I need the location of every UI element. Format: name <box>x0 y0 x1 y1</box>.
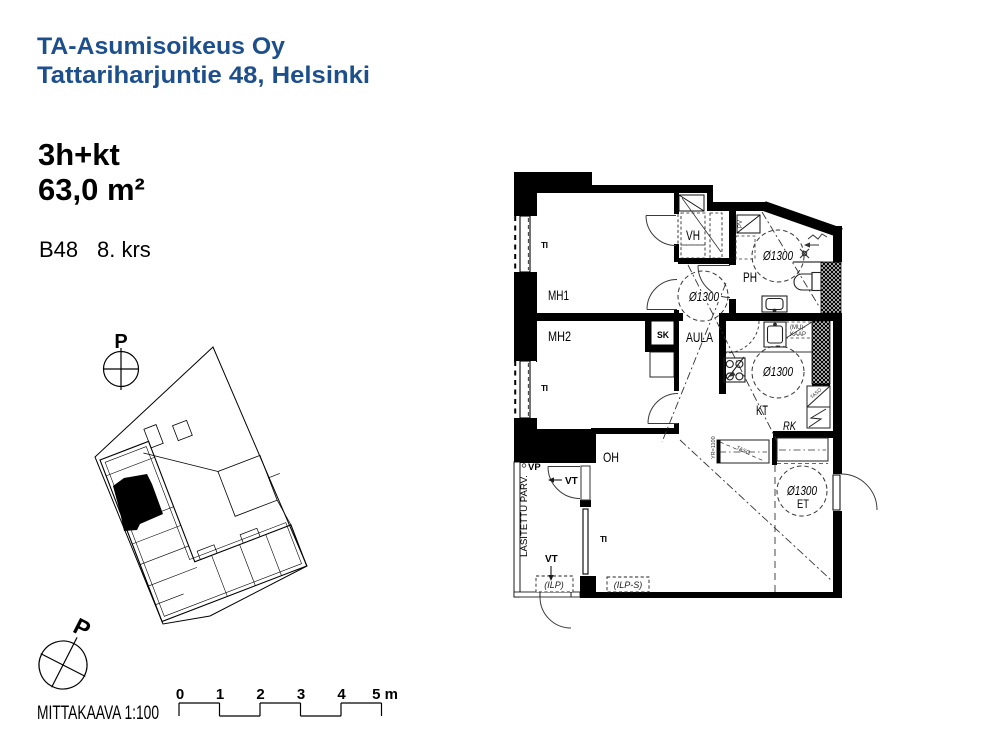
svg-text:VT: VT <box>565 476 578 487</box>
svg-text:KAAP: KAAP <box>790 332 806 338</box>
svg-text:AULA: AULA <box>686 329 713 345</box>
svg-text:Ø1300: Ø1300 <box>688 290 719 304</box>
svg-text:VH: VH <box>686 227 700 243</box>
svg-text:LASITETTU PARV.: LASITETTU PARV. <box>519 475 530 557</box>
svg-text:2: 2 <box>256 686 264 703</box>
svg-text:Ø1300: Ø1300 <box>786 484 817 498</box>
svg-text:OH: OH <box>603 449 619 465</box>
svg-text:0: 0 <box>176 686 184 703</box>
svg-text:B48: B48 <box>39 237 78 262</box>
svg-text:63,0 m²: 63,0 m² <box>38 172 145 207</box>
svg-text:VP: VP <box>528 462 541 473</box>
svg-text:KT: KT <box>756 402 768 418</box>
svg-text:3: 3 <box>297 686 305 703</box>
svg-text:RK: RK <box>783 419 797 433</box>
svg-text:5 m: 5 m <box>372 686 398 703</box>
svg-text:(ILP-S): (ILP-S) <box>614 580 643 590</box>
svg-text:(ILP): (ILP) <box>544 580 564 590</box>
svg-text:P: P <box>114 331 127 353</box>
svg-text:Tattariharjuntie 48, Helsinki: Tattariharjuntie 48, Helsinki <box>37 62 370 89</box>
svg-text:ET: ET <box>797 497 810 511</box>
svg-text:PV: PV <box>738 220 744 228</box>
svg-text:MH2: MH2 <box>548 328 571 344</box>
svg-text:3h+kt: 3h+kt <box>38 137 120 172</box>
svg-text:8. krs: 8. krs <box>97 237 151 262</box>
svg-text:TA-Asumisoikeus Oy: TA-Asumisoikeus Oy <box>37 33 286 60</box>
svg-text:SK: SK <box>657 330 669 340</box>
svg-text:1: 1 <box>216 686 224 703</box>
svg-text:TI: TI <box>600 534 607 544</box>
svg-text:Ø1300: Ø1300 <box>762 249 793 263</box>
svg-text:YR=1100: YR=1100 <box>711 436 717 459</box>
svg-text:VT: VT <box>545 554 558 565</box>
svg-text:TI: TI <box>541 240 548 250</box>
svg-text:Ø1300: Ø1300 <box>762 365 793 379</box>
svg-text:PH: PH <box>743 269 757 285</box>
svg-text:TI: TI <box>541 383 548 393</box>
svg-text:(MU)-: (MU)- <box>790 325 805 331</box>
svg-text:4: 4 <box>337 686 346 703</box>
svg-text:MH1: MH1 <box>548 287 569 303</box>
svg-text:MITTAKAAVA 1:100: MITTAKAAVA 1:100 <box>37 703 159 724</box>
